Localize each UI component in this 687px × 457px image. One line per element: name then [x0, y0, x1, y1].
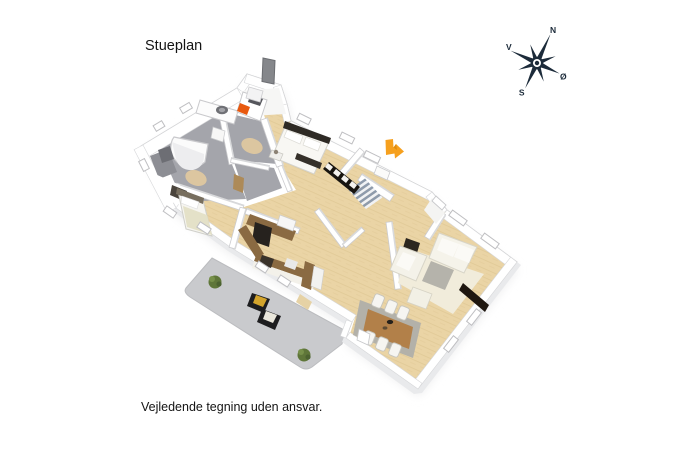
svg-text:N: N: [550, 25, 556, 35]
svg-text:S: S: [519, 88, 525, 98]
svg-text:V: V: [506, 42, 512, 52]
svg-text:Ø: Ø: [560, 72, 567, 82]
